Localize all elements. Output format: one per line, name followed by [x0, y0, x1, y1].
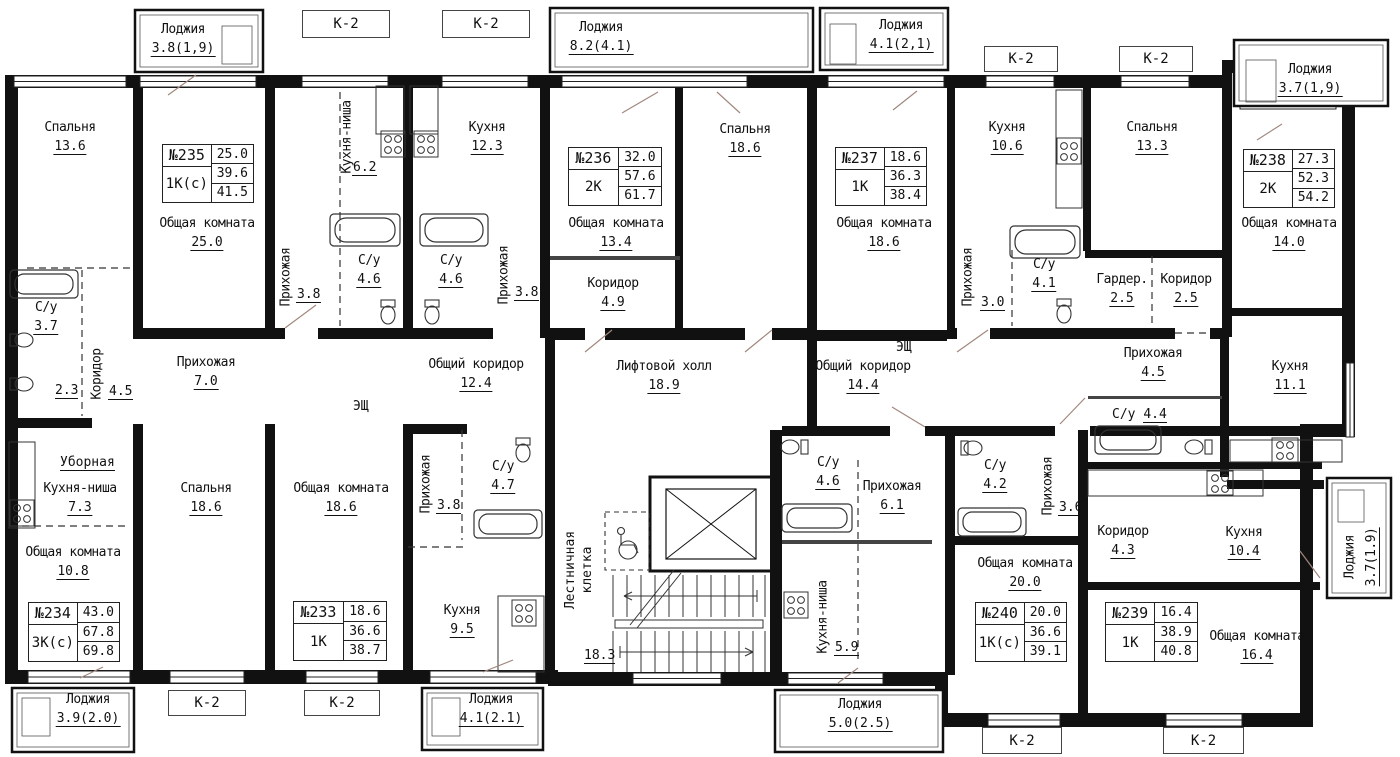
loggia-area-239: 3.7(1.9) — [1364, 528, 1380, 587]
toilet-room-label: Уборная — [60, 455, 115, 471]
k2-marker-1: К-2 — [302, 10, 390, 38]
apartment-type: 1К — [294, 624, 343, 660]
apartment-info-234: №2343К(с) 43.067.869.8 — [28, 602, 120, 662]
apartment-type: 2К — [1244, 172, 1292, 207]
apartment-type: 1К — [836, 170, 884, 205]
apartment-number: №233 — [294, 602, 343, 624]
room-label-hall-236: Прихожая — [497, 246, 512, 305]
apartment-area: 52.3 — [1293, 169, 1334, 188]
apartment-info-239: №2391К 16.438.940.8 — [1105, 602, 1198, 662]
room-label-hall-235: Прихожая — [279, 248, 294, 307]
apartment-number: №238 — [1244, 150, 1292, 172]
apartment-area: 67.8 — [78, 623, 119, 643]
room-label-bathroom-240: С/у4.2 — [982, 458, 1007, 493]
room-label-living-237: Общая комната18.6 — [836, 216, 931, 251]
apartment-type: 1К — [1106, 625, 1154, 661]
k2-marker-5: К-2 — [168, 690, 246, 716]
apartment-living-area: 27.3 — [1293, 150, 1334, 169]
room-label-kitchen-239: Кухня10.4 — [1226, 525, 1263, 560]
apartment-info-237: №2371К 18.636.338.4 — [835, 147, 927, 206]
apartment-living-area: 20.0 — [1025, 603, 1066, 623]
room-label-hall-240b: Прихожая — [1041, 457, 1056, 516]
apartment-type: 1К(с) — [163, 167, 211, 202]
room-label-hall-237: Прихожая — [961, 248, 976, 307]
apartment-area: 36.3 — [885, 167, 926, 186]
room-label-hall-233: Прихожая — [419, 455, 434, 514]
apartment-number: №236 — [569, 148, 618, 170]
room-label-living-239: Общая комната16.4 — [1209, 629, 1304, 664]
apartment-total-area: 41.5 — [212, 184, 253, 202]
room-label-bathroom-237: С/у4.1 — [1031, 257, 1056, 292]
k2-marker-3: К-2 — [984, 46, 1058, 72]
loggia-label-238: Лоджия3.7(1,9) — [1278, 62, 1343, 97]
room-label-bathroom-236: С/у4.6 — [438, 253, 463, 288]
apartment-total-area: 38.7 — [344, 641, 386, 660]
k2-marker-4: К-2 — [1119, 46, 1193, 72]
room-label-kitchen-238: Кухня11.1 — [1272, 359, 1309, 394]
floor-plan: №2351К(с) 25.039.641.5 №2362К 32.057.661… — [0, 0, 1400, 757]
room-label-living-236: Общая комната13.4 — [568, 216, 663, 251]
loggia-label-239: Лоджия — [1343, 535, 1358, 579]
apartment-info-235: №2351К(с) 25.039.641.5 — [162, 144, 254, 203]
apartment-area: 39.6 — [212, 164, 253, 183]
stair-area-label: 18.3 — [584, 648, 615, 664]
loggia-label-233: Лоджия4.1(2.1) — [459, 692, 524, 727]
apartment-number: №240 — [976, 603, 1024, 625]
room-label-wardrobe-238: Гардер.2.5 — [1096, 272, 1147, 307]
apartment-info-238: №2382К 27.352.354.2 — [1243, 149, 1335, 208]
electrical-panel-label-west: ЭЩ — [353, 399, 369, 414]
apartment-area: 38.9 — [1155, 623, 1197, 643]
apartment-living-area: 25.0 — [212, 145, 253, 164]
room-label-living-238: Общая комната14.0 — [1241, 216, 1336, 251]
room-label-living-235: Общая комната25.0 — [159, 216, 254, 251]
room-label-kitchen-233: Кухня9.5 — [444, 603, 481, 638]
room-label-kitchen-niche-234: Кухня-ниша7.3 — [43, 481, 116, 516]
apartment-number: №237 — [836, 148, 884, 170]
room-label-bathroom-core: С/у4.6 — [815, 455, 840, 490]
loggia-label-234: Лоджия3.9(2.0) — [56, 692, 121, 727]
room-label-kitchen-niche-240: Кухня-ниша — [816, 580, 831, 653]
room-label-hall-240: Прихожая6.1 — [863, 479, 922, 514]
room-label-common-corridor-west: Общий коридор12.4 — [428, 357, 523, 392]
k2-marker-8: К-2 — [1163, 727, 1244, 754]
room-label-common-corridor-east: Общий коридор14.4 — [815, 359, 910, 394]
k2-marker-2: К-2 — [442, 10, 530, 38]
apartment-living-area: 18.6 — [885, 148, 926, 167]
loggia-label-240: Лоджия5.0(2.5) — [828, 697, 893, 732]
apartment-living-area: 18.6 — [344, 602, 386, 622]
apartment-number: №234 — [29, 603, 77, 625]
loggia-label-235: Лоджия3.8(1,9) — [151, 22, 216, 57]
room-label-corridor-234: Коридор — [90, 348, 105, 399]
apartment-info-233: №2331К 18.636.638.7 — [293, 601, 387, 661]
apartment-total-area: 38.4 — [885, 187, 926, 205]
k2-marker-6: К-2 — [304, 690, 380, 716]
apartment-type: 1К(с) — [976, 625, 1024, 661]
room-label-bathroom-239: С/у 4.4 — [1112, 407, 1167, 422]
room-label-hall-234: Прихожая7.0 — [177, 355, 236, 390]
apartment-number: №239 — [1106, 603, 1154, 625]
room-label-kitchen-237: Кухня10.6 — [989, 120, 1026, 155]
k2-marker-7: К-2 — [982, 727, 1062, 754]
electrical-panel-label-east: ЭЩ — [896, 340, 912, 355]
room-label-lift-hall: Лифтовой холл18.9 — [616, 359, 711, 394]
apartment-total-area: 69.8 — [78, 642, 119, 661]
room-label-corridor-238: Коридор2.5 — [1160, 272, 1211, 307]
apartment-total-area: 61.7 — [619, 187, 661, 205]
room-label-corridor-236: Коридор4.9 — [587, 276, 638, 311]
room-label-bedroom-234: Спальня13.6 — [44, 120, 95, 155]
apartment-number: №235 — [163, 145, 211, 167]
room-label-living-234: Общая комната10.8 — [25, 545, 120, 580]
room-label-bathroom-233: С/у4.7 — [490, 459, 515, 494]
apartment-total-area: 39.1 — [1025, 642, 1066, 661]
toilet-area-label: 2.3 — [55, 383, 78, 399]
room-label-bedroom-236: Спальня18.6 — [719, 122, 770, 157]
room-label-living-233: Общая комната18.6 — [293, 481, 388, 516]
loggia-label-236: Лоджия8.2(4.1) — [569, 20, 634, 55]
apartment-info-240: №2401К(с) 20.036.639.1 — [975, 602, 1067, 662]
room-label-bedroom2-234: Спальня18.6 — [180, 481, 231, 516]
apartment-area: 57.6 — [619, 167, 661, 186]
apartment-area: 36.6 — [344, 622, 386, 642]
room-label-bathroom-234: С/у3.7 — [33, 300, 58, 335]
apartment-living-area: 32.0 — [619, 148, 661, 167]
room-label-kitchen-236: Кухня12.3 — [469, 120, 506, 155]
loggia-label-237: Лоджия4.1(2,1) — [869, 18, 934, 53]
room-label-living-240: Общая комната20.0 — [977, 556, 1072, 591]
room-label-bathroom-235: С/у4.6 — [356, 253, 381, 288]
apartment-type: 2К — [569, 170, 618, 205]
apartment-info-236: №2362К 32.057.661.7 — [568, 147, 662, 206]
room-label-stairwell: Лестничнаяклетка — [562, 531, 596, 609]
apartment-living-area: 43.0 — [78, 603, 119, 623]
apartment-total-area: 54.2 — [1293, 189, 1334, 207]
apartment-area: 36.6 — [1025, 623, 1066, 643]
room-label-bedroom-238: Спальня13.3 — [1126, 120, 1177, 155]
apartment-total-area: 40.8 — [1155, 642, 1197, 661]
room-label-corridor-239: Коридор4.3 — [1097, 524, 1148, 559]
apartment-living-area: 16.4 — [1155, 603, 1197, 623]
apartment-type: 3К(с) — [29, 625, 77, 661]
room-label-hall-238: Прихожая4.5 — [1124, 346, 1183, 381]
